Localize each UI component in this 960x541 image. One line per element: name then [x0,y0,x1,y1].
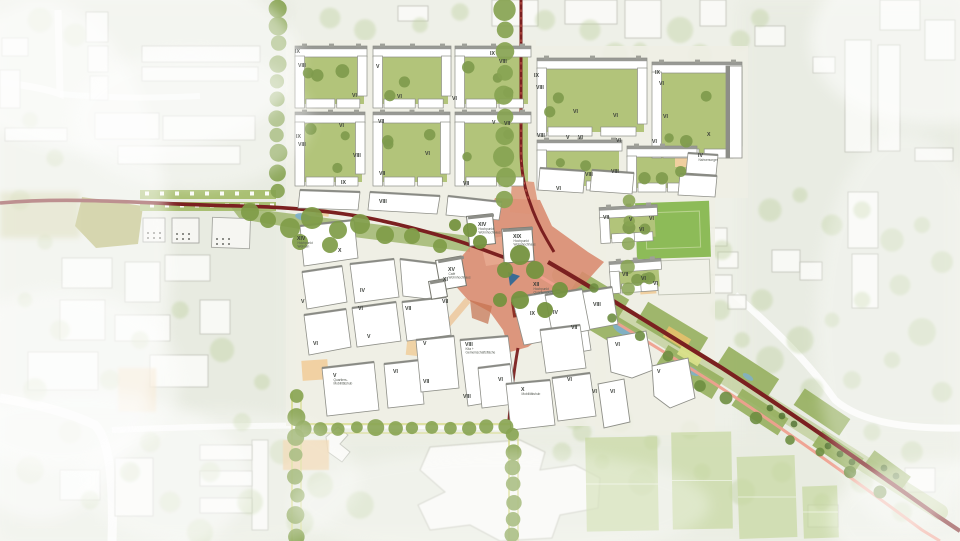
boulevard-tree [785,435,795,445]
plaza-tree [493,293,507,307]
roof-core [520,110,525,113]
height-label: V [629,217,633,223]
courtyard-tree [638,172,650,184]
stream-tree [404,228,420,244]
height-label: VII [622,272,629,278]
courtyard-tree [675,166,686,177]
roof-core [590,56,595,59]
window-dot [182,238,184,240]
height-label: VII [442,299,449,305]
building [418,177,443,186]
street-tree [271,184,285,198]
roof-core [410,110,415,113]
stream-tree [329,221,347,239]
courtyard-tree [399,76,410,87]
building [356,122,366,174]
roof-core [520,44,525,47]
street-tree [388,421,403,436]
building [306,99,335,108]
context-tree [667,17,693,43]
courtyard-tree [341,131,350,140]
allotment-hut [235,192,239,196]
context-tree [171,301,188,318]
street-tree [462,421,476,435]
window-dot [216,238,218,240]
height-label: VI [578,135,583,141]
height-label: VII [379,171,386,177]
height-label: VI [649,216,654,222]
window-dot [222,243,224,245]
courtyard-tree [332,163,342,173]
height-label: VIII [379,199,387,205]
street-tree [493,146,514,167]
height-label: IX [530,311,535,317]
building [322,362,379,416]
context-building [772,250,800,272]
window-dot [228,238,230,240]
height-label: VI [556,186,561,192]
street-tree [498,419,513,434]
courtyard-tree [701,91,712,102]
building-roof [726,66,730,158]
roof-core [660,144,665,147]
window-dot [188,238,190,240]
street-tree [496,168,516,188]
street-tree [494,86,513,105]
building [506,380,555,430]
height-label: VI [652,139,657,145]
roof-core [646,202,651,205]
window-dot [182,233,184,235]
height-label: IV [553,310,558,316]
height-label: VI [663,114,668,120]
roof-core [302,44,307,47]
context-tree [210,338,234,362]
annotated-label-line: Wohnhochhaus [479,231,501,235]
context-tree [412,17,428,33]
building [418,99,443,108]
height-label: V [376,64,380,70]
courtyard-tree [424,129,435,140]
park-tree [825,443,832,450]
building [598,379,630,428]
roof-core [491,110,496,113]
height-label: VI [339,123,344,129]
courtyard-tree [656,172,668,184]
height-label: VIII [537,133,545,139]
plaza-tree [510,245,530,265]
courtyard-tree [680,135,693,148]
height-label: VI [610,389,615,395]
roof-core [659,60,664,63]
stream-tree [322,237,338,253]
plaza-tree [552,282,568,298]
height-label: VI [397,94,402,100]
height-label: VII [603,215,610,221]
park-tree [779,413,786,420]
annotated-label-line: Gemeinschaftsfläche [466,351,496,355]
courtyard-tree [383,139,393,149]
building [678,174,717,197]
plaza-tree [473,235,487,249]
context-tree [751,9,769,27]
height-label: VII [405,306,412,312]
plaza-tree [449,219,461,231]
window-dot [222,238,224,240]
height-label: VI [613,113,618,119]
roof-core [380,110,385,113]
context-tree [579,19,600,40]
boulevard-tree [815,447,824,456]
street-tree [622,282,635,295]
height-label: V [367,334,371,340]
street-tree [497,21,514,38]
masterplan-map: IXVIIIVVIVIVIIXVIIIIXVIIIVIVIIVVIIVIIIVI… [0,0,960,541]
street-tree [444,422,457,435]
height-label: VI [358,306,363,312]
roof-core [356,44,361,47]
roof-core [462,110,467,113]
boulevard-tree [589,283,598,292]
height-label: VI [352,93,357,99]
context-tree [786,326,813,353]
context-tree [792,187,807,202]
height-label: VI [592,389,597,395]
context-tree [734,332,750,348]
context-building [200,300,230,334]
building [336,177,358,186]
stream-tree [301,207,323,229]
window-dot [188,233,190,235]
boulevard-tree [694,380,706,392]
roof-core [380,44,385,47]
height-label: VIII [611,169,619,175]
allotment-hut [220,192,224,196]
street-tree [495,127,514,146]
boulevard-tree [663,351,674,362]
building [600,217,611,243]
window-dot [216,243,218,245]
stream-tree [376,226,394,244]
height-label: VI [615,342,620,348]
roof-core [328,110,333,113]
annotated-label-line: Wohnen [298,245,310,249]
context-building [700,0,726,26]
street-tree [496,42,515,61]
height-label: IV [360,288,365,294]
street-tree [425,421,438,434]
height-label: VII [423,379,430,385]
roof-core [731,60,736,63]
building [538,168,585,193]
plaza-tree [526,261,544,279]
street-tree [496,191,513,208]
context-building [625,0,661,38]
height-label: VI [653,281,658,287]
building [607,331,653,378]
allotment-hut [265,192,269,196]
boulevard-tree [607,313,616,322]
roof-core [329,44,334,47]
courtyard-tree [384,90,395,101]
context-tree [535,10,555,30]
building [302,266,347,309]
allotment-hut [250,192,254,196]
courtyard-tree [544,106,555,117]
building [384,360,424,408]
annotated-label-line: Quartiersplatz [534,291,554,295]
courtyard-tree [580,160,591,171]
roof-core [634,144,639,147]
roof-core [354,110,359,113]
height-label: VI [573,109,578,115]
courtyard-tree [664,133,673,142]
roof-core [410,44,415,47]
height-label: VIII [536,85,544,91]
roof-core [616,259,621,262]
courtyard-tree [462,61,475,74]
stream-tree [433,239,447,253]
building [441,122,451,174]
height-label: VI [567,377,572,383]
roof-core [636,56,641,59]
annotated-label-line: Mobilitätshub [334,382,353,386]
height-label: VII [463,181,470,187]
plaza-tree [497,262,513,278]
context-building [165,255,210,281]
building [601,127,636,136]
height-label: VI [639,227,644,233]
allotment-hut [175,192,179,196]
height-label: VI [659,81,664,87]
height-label: V [423,341,427,347]
window-dot [176,238,178,240]
roof-core [439,110,444,113]
context-tree [320,8,341,29]
height-label: V [657,369,661,375]
annotated-label-line: Wohnhochhaus [449,276,471,280]
stream-tree [241,203,259,221]
context-tree [751,289,773,311]
context-building [728,295,746,309]
height-label: VI [425,151,430,157]
building [552,373,596,421]
street-tree [406,422,418,434]
courtyard-tree [462,152,471,161]
building [466,177,496,186]
height-label: IX [341,180,346,186]
height-label: IX [534,73,539,79]
building [337,99,360,108]
height-label: VI [616,138,621,144]
stream-tree [350,214,370,234]
height-label: VIII [463,394,471,400]
building [304,309,351,355]
boulevard-tree [720,392,733,405]
context-tree [254,374,270,390]
height-label: VIII [353,153,361,159]
haze [70,50,310,190]
height-label: VII [378,119,385,125]
height-label: V [301,299,305,305]
building [306,177,334,186]
building [466,99,496,108]
annotated-label-line: Mobilitätshub [522,392,541,396]
roof-core [491,44,496,47]
masterplan-svg: IXVIIIVVIVIVIIXVIIIIXVIIIVIVIIVVIIVIIIVI… [0,0,960,541]
roof-core [633,257,638,260]
height-label: VII [504,121,511,127]
building [358,56,368,96]
allotment-hut [190,192,194,196]
street-tree [367,419,384,436]
building [540,325,586,373]
street-tree [623,194,636,207]
boulevard-tree [635,331,645,341]
height-label: VI [313,341,318,347]
height-label: X [338,248,342,254]
height-label: VIII [585,172,593,178]
building [638,68,648,124]
courtyard-tree [556,158,565,167]
roof-core [695,60,700,63]
height-label: VI [452,96,457,102]
height-label: VI [498,377,503,383]
height-label: X [707,132,711,138]
park-tree [791,421,798,428]
allotment-hut [205,192,209,196]
roof-core [606,205,611,208]
height-label: V [492,120,496,126]
height-label: VI [641,276,646,282]
park-tree [767,405,774,412]
annotated-label-line: Nahversorger [699,158,719,162]
height-label: IX [655,70,660,76]
street-tree [622,237,635,250]
height-label: IX [490,51,495,57]
height-label: VI [393,369,398,375]
street-tree [497,65,513,81]
street-tree [479,419,493,433]
courtyard-tree [335,64,349,78]
context-tree [712,240,732,260]
context-building [755,26,785,46]
building [455,122,465,186]
building [298,190,360,210]
sports-court [657,259,710,295]
roof-core [650,256,655,259]
plaza-tree [537,302,553,318]
building [350,259,399,303]
height-label: VIII [593,302,601,308]
window-dot [176,233,178,235]
context-tree [451,3,468,20]
building [442,56,452,96]
context-tree [354,19,376,41]
context-tree [758,198,781,221]
height-label: VII [571,325,578,331]
courtyard-tree [553,92,564,103]
annotated-label-line: Wohnhochhaus [514,243,536,247]
roof-core [544,56,549,59]
stream-tree [260,212,276,228]
window-dot [228,243,230,245]
courtyard-tree [311,69,323,81]
building [384,177,415,186]
street-tree [351,421,363,433]
plaza-tree [511,291,529,309]
street-tree [331,422,344,435]
roof-core [440,44,445,47]
height-label: V [566,135,570,141]
street-tree [290,389,304,403]
height-label: VIII [499,59,507,65]
roof-core [462,44,467,47]
plaza-tree [463,223,477,237]
building [548,127,592,136]
boulevard-tree [750,412,762,424]
